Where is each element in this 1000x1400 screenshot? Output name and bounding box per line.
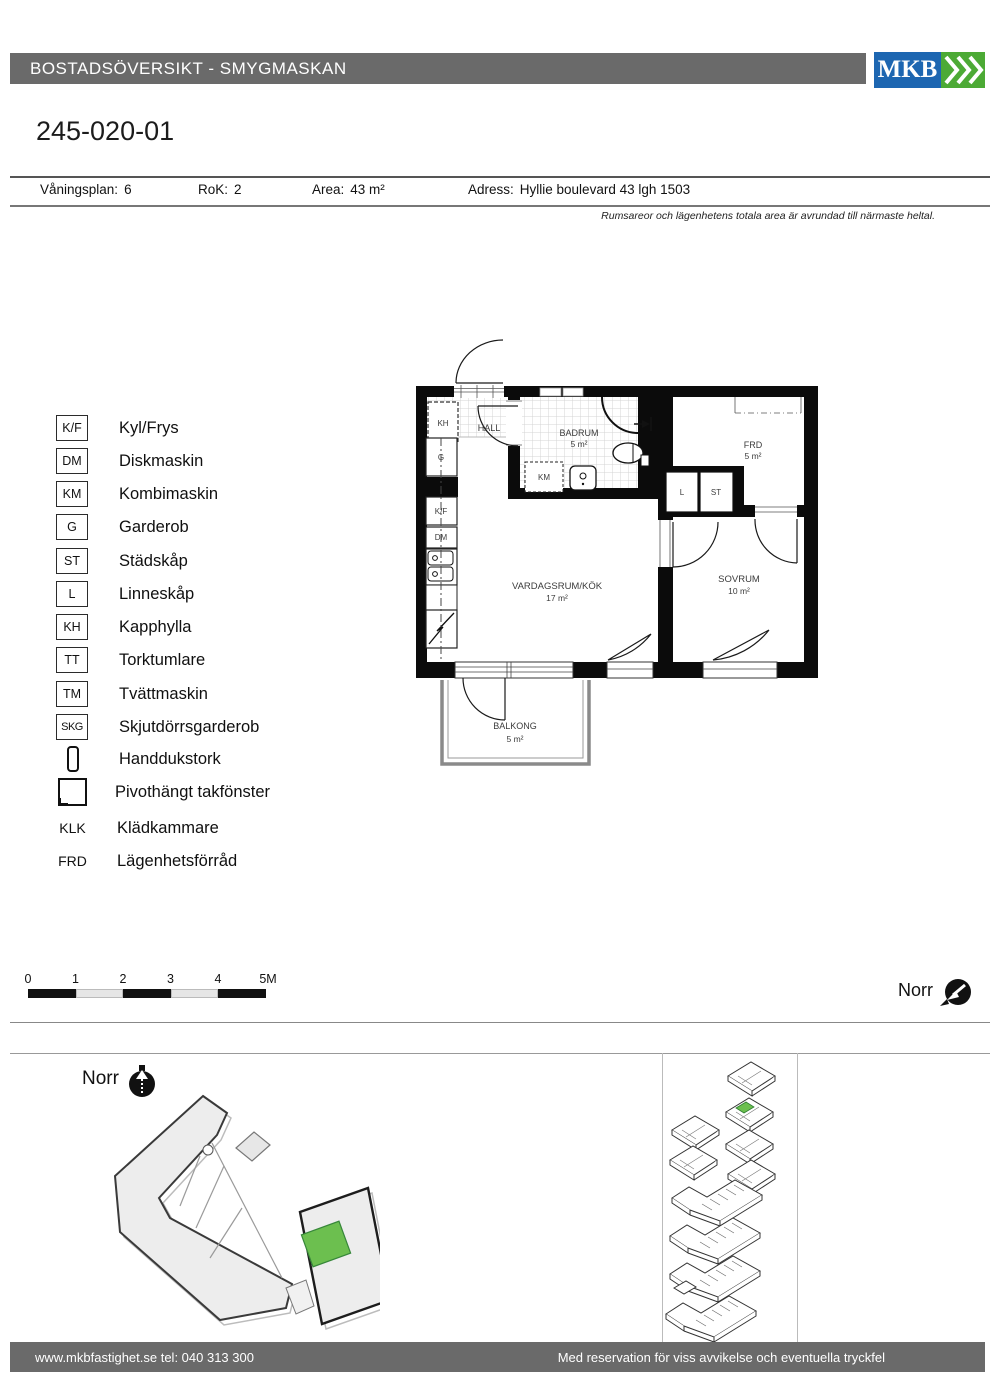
balkong-area: 5 m² (507, 734, 524, 744)
divider-site (10, 1053, 990, 1054)
page: BOSTADSÖVERSIKT - SMYGMASKAN MKB 245-020… (0, 0, 1000, 1400)
site-wing (236, 1132, 270, 1161)
area-note: Rumsareor och lägenhetens totala area är… (601, 210, 935, 222)
g-label: G (438, 453, 444, 462)
kf-label: K/F (435, 507, 448, 516)
legend-row-frd: FRDLägenhetsförråd (56, 848, 237, 874)
mkb-logo-blue: MKB (874, 52, 941, 88)
badrum-label: BADRUM (559, 428, 598, 438)
sovrum-area: 10 m² (728, 586, 750, 596)
info-vaningsplan: Våningsplan:6 (40, 182, 132, 197)
mkb-logo-text: MKB (878, 56, 938, 84)
isometric-floor-plate (666, 1296, 756, 1342)
kh-label: KH (437, 419, 448, 428)
closets (666, 472, 733, 512)
isometric-floor-plate (726, 1130, 773, 1164)
windows (455, 662, 777, 678)
north-compass-plan-icon (938, 974, 978, 1010)
toilet-icon (613, 443, 643, 463)
legend-row-takfonster: Pivothängt takfönster (56, 779, 270, 805)
frd-overhead (735, 397, 801, 413)
legend-row-handdukstork: Handdukstork (56, 746, 221, 772)
legend-row-klk: KLKKlädkammare (56, 815, 219, 841)
info-adress: Adress:Hyllie boulevard 43 lgh 1503 (468, 182, 690, 197)
header-title: BOSTADSÖVERSIKT - SMYGMASKAN (10, 59, 347, 79)
km-label: KM (538, 473, 550, 482)
page-title: 245-020-01 (36, 116, 174, 147)
balkong-label: BALKONG (493, 721, 537, 731)
legend-row-tm: TMTvättmaskin (56, 681, 208, 707)
handdukstork (641, 455, 649, 466)
isometric-floor-plate (670, 1146, 717, 1180)
legend-row-kh: KHKapphylla (56, 614, 191, 640)
dm-label: DM (435, 533, 448, 542)
legend-row-g: GGarderob (56, 514, 189, 540)
footer-disclaimer: Med reservation för viss avvikelse och e… (558, 1350, 985, 1365)
scale-bar: 0 1 2 3 4 5M (28, 972, 288, 1002)
mkb-logo-chevrons-icon (941, 52, 985, 88)
info-rok: RoK:2 (198, 182, 242, 197)
hall-label: HALL (478, 423, 501, 433)
legend-row-dm: DMDiskmaskin (56, 448, 203, 474)
legend-row-kf: K/FKyl/Frys (56, 415, 179, 441)
site-building-main (115, 1096, 292, 1320)
north-label-site: Norr (82, 1068, 119, 1090)
sovrum-label: SOVRUM (718, 574, 760, 585)
north-label-plan: Norr (898, 980, 933, 1001)
floorplan: HALL BADRUM 5 m² FRD 5 m² VARDAGSRUM/KÖK… (412, 336, 822, 776)
handdukstork-icon (67, 746, 79, 772)
vardagsrum-label: VARDAGSRUM/KÖK (512, 581, 603, 592)
divider-top (10, 176, 990, 178)
isometric-floor-plate (672, 1116, 719, 1150)
l-label: L (680, 488, 685, 497)
sink-icon (570, 466, 596, 490)
vardagsrum-area: 17 m² (546, 593, 568, 603)
isometric-stack (652, 1046, 802, 1346)
divider-scale (10, 1022, 990, 1023)
footer-contact: www.mkbfastighet.se tel: 040 313 300 (10, 1350, 254, 1365)
legend-row-km: KMKombimaskin (56, 481, 218, 507)
legend-row-tt: TTTorktumlare (56, 647, 205, 673)
roof-window-icon (58, 778, 87, 806)
isometric-floor-plate (728, 1062, 775, 1096)
frd-label: FRD (744, 440, 763, 450)
divider-info (10, 205, 990, 207)
footer-bar: www.mkbfastighet.se tel: 040 313 300 Med… (10, 1342, 985, 1372)
kitchen-fixtures (426, 402, 458, 660)
site-stairwell (203, 1145, 213, 1155)
header-bar: BOSTADSÖVERSIKT - SMYGMASKAN (10, 53, 866, 84)
legend-row-l: LLinneskåp (56, 581, 194, 607)
mkb-logo: MKB (874, 52, 985, 88)
frd-area: 5 m² (745, 451, 762, 461)
info-area: Area:43 m² (312, 182, 385, 197)
badrum-area: 5 m² (571, 439, 588, 449)
st-label: ST (711, 488, 721, 497)
isometric-floor-plate (670, 1218, 760, 1264)
legend-row-st: STStädskåp (56, 548, 188, 574)
site-plan (100, 1088, 380, 1348)
isometric-floor-plate (726, 1098, 773, 1132)
legend-row-skg: SKGSkjutdörrsgarderob (56, 714, 259, 740)
